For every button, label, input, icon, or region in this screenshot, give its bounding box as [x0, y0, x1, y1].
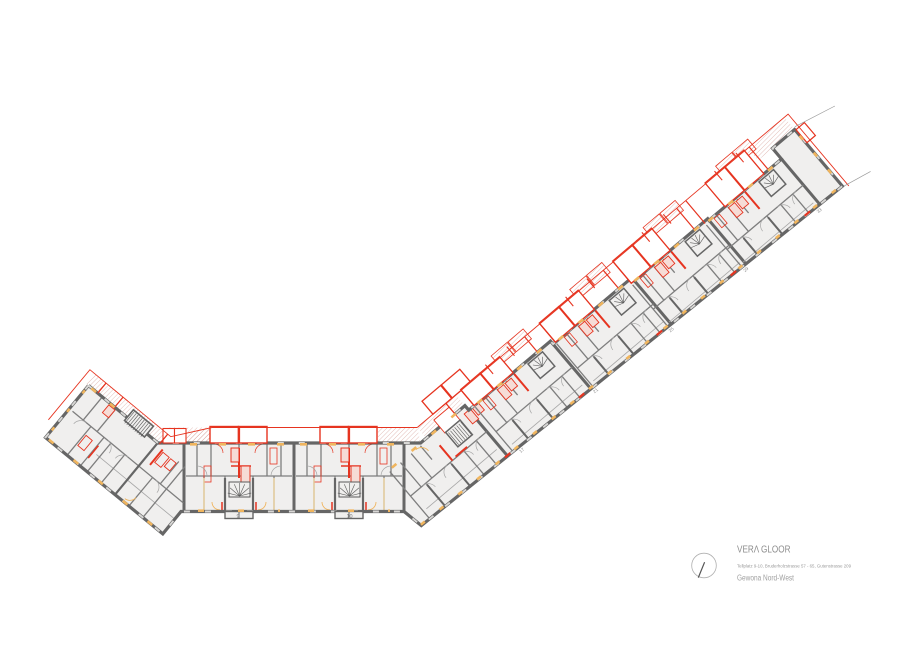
- svg-text:Gewona Nord-West: Gewona Nord-West: [737, 574, 795, 583]
- svg-text:VERΛ GLOOR: VERΛ GLOOR: [737, 544, 791, 556]
- svg-text:Tellplatz 9-10, Bruderholzstra: Tellplatz 9-10, Bruderholzstrasse 57 - 6…: [737, 564, 851, 569]
- svg-text:10: 10: [347, 514, 353, 520]
- svg-text:9: 9: [237, 514, 240, 520]
